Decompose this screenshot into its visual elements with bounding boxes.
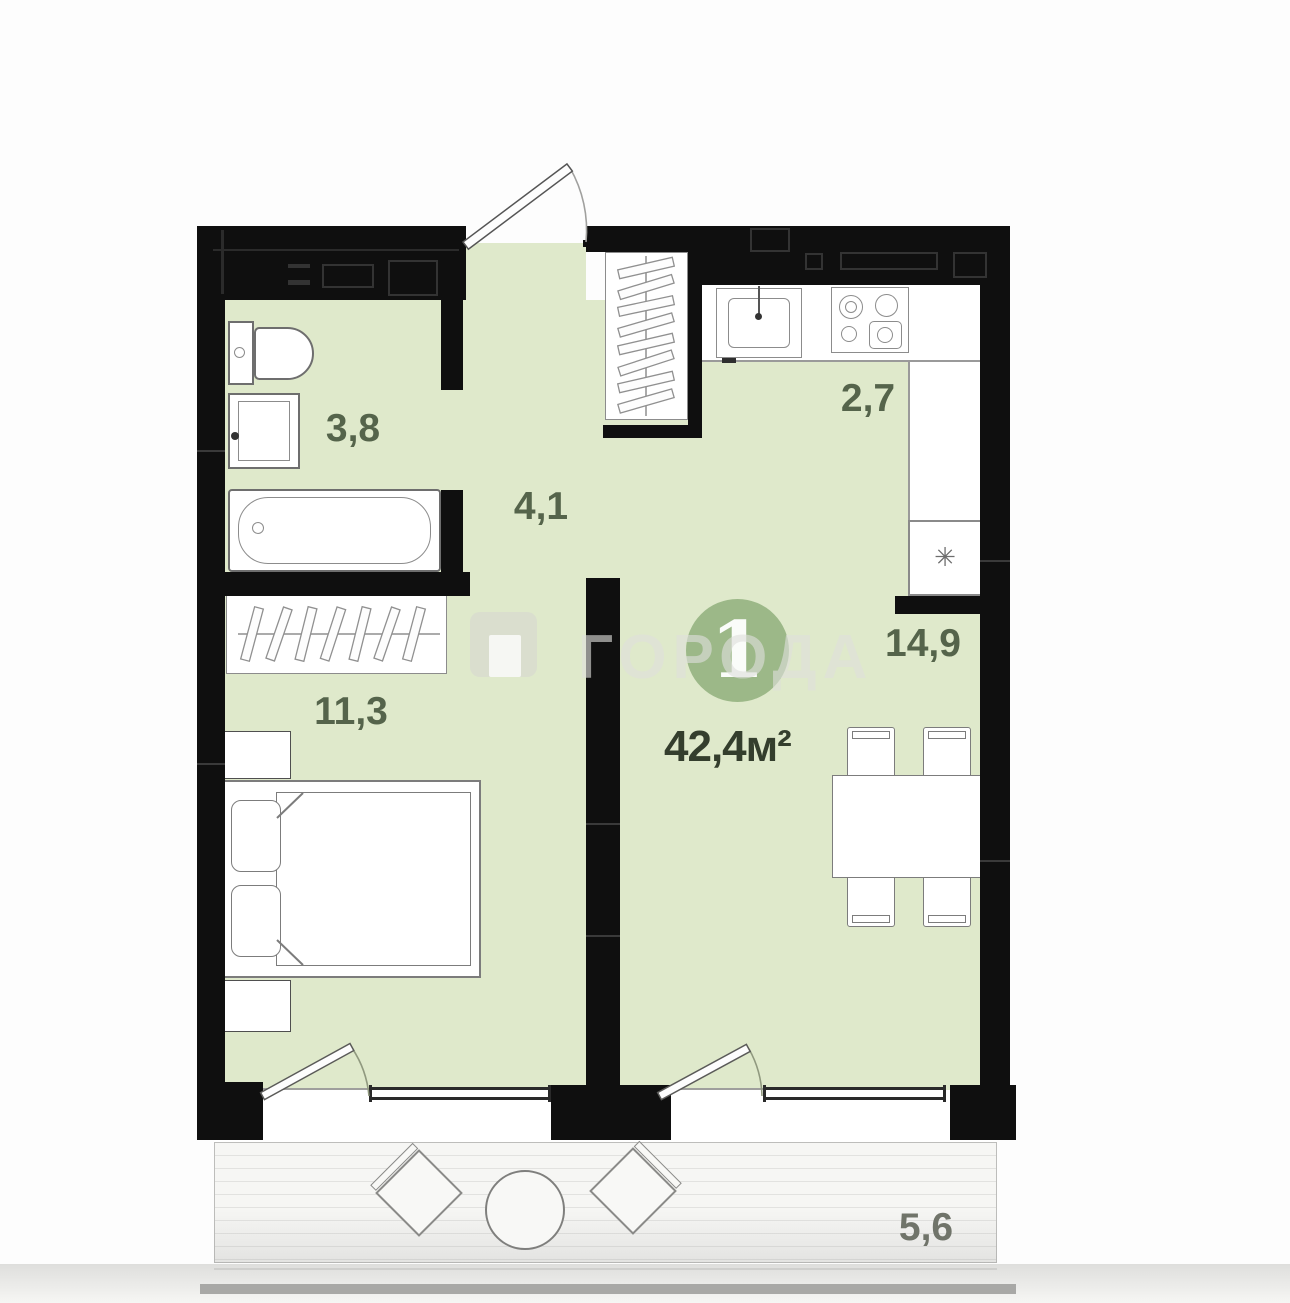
bathroom-sink-basin — [238, 401, 290, 461]
fridge: ✳ — [908, 520, 982, 596]
chair-backrest — [928, 731, 966, 739]
window-end-tick — [763, 1085, 766, 1102]
wall-joint-tick — [586, 935, 620, 937]
bathtub-drain — [252, 522, 264, 534]
sink-faucet-dot — [231, 432, 239, 440]
balcony-deck-edge-line — [214, 1268, 997, 1270]
window-end-tick — [548, 1085, 551, 1102]
wall-joint-tick — [586, 823, 620, 825]
chair-backrest — [928, 915, 966, 923]
entrance-door-swing — [463, 164, 587, 249]
stove-burner-4 — [877, 327, 893, 343]
nightstand-top — [224, 731, 291, 779]
bedroom-wardrobe — [226, 595, 447, 674]
wall-joint-tick — [980, 560, 1010, 562]
total-area-label: 42,4м² — [664, 722, 791, 772]
vent-outline — [388, 260, 438, 296]
kitchen-faucet — [758, 286, 760, 316]
balcony-shadow-bar — [200, 1284, 1016, 1294]
stove-burner-2 — [875, 294, 898, 317]
balcony-round-table — [485, 1170, 565, 1250]
pier-bottom-left — [197, 1082, 263, 1140]
wall-wardrobe-right — [688, 252, 702, 438]
wall-top-middle — [586, 226, 702, 252]
apartment-number-badge: 1 — [686, 599, 789, 702]
wall-joint-tick — [197, 450, 225, 452]
window-end-tick — [943, 1085, 946, 1102]
balcony-door-threshold-bedroom — [263, 1088, 369, 1090]
vent-outline — [953, 252, 987, 278]
toilet-flush-button — [234, 347, 245, 358]
wall-fridge-stub — [895, 596, 982, 614]
wall-bathroom-bottom — [197, 572, 470, 596]
pier-bottom-center — [551, 1085, 671, 1140]
vent-outline — [213, 249, 459, 251]
nightstand-bottom — [224, 980, 291, 1032]
chair-backrest — [852, 915, 890, 923]
cabinet-handle — [722, 358, 736, 363]
vent-outline — [288, 264, 310, 268]
wall-right — [980, 226, 1010, 1086]
bedroom-window — [369, 1087, 551, 1100]
bed-pillow-top — [231, 800, 281, 872]
floor-plan: ✳ 1 42,4м² 3,8 4,1 2,7 14,9 11,3 5,6 — [0, 0, 1290, 1303]
floor-entry-strip — [466, 243, 586, 303]
balcony-door-threshold-living — [660, 1088, 763, 1090]
wall-joint-tick — [980, 860, 1010, 862]
wall-joint-tick — [197, 763, 225, 765]
vent-outline — [322, 264, 374, 288]
wall-bathroom-right-upper — [441, 300, 463, 390]
balcony-area-label: 5,6 — [876, 1206, 976, 1250]
bathroom-area-label: 3,8 — [303, 407, 403, 451]
bedroom-area-label: 11,3 — [301, 690, 401, 734]
wall-wardrobe-bottom — [603, 425, 702, 438]
living-room-area-label: 14,9 — [863, 622, 983, 666]
stove-burner-3 — [841, 326, 857, 342]
vent-outline — [805, 253, 823, 270]
vent-outline — [288, 280, 310, 285]
pier-bottom-right — [950, 1085, 1016, 1140]
chair-backrest — [852, 731, 890, 739]
wall-central — [586, 578, 620, 1085]
window-end-tick — [369, 1085, 372, 1102]
entrance-hinge-right — [583, 240, 590, 247]
bed-mattress — [276, 792, 471, 966]
hallway-wardrobe — [605, 252, 688, 420]
dining-table — [832, 775, 985, 878]
bathtub-inner — [238, 497, 431, 564]
entrance-hinge-left — [463, 240, 470, 247]
vent-outline — [221, 230, 224, 294]
vent-outline — [750, 228, 790, 252]
kitchen-faucet-dot — [755, 313, 762, 320]
wall-left — [197, 226, 225, 1084]
hallway-area-label: 4,1 — [491, 485, 591, 529]
kitchen-area-label: 2,7 — [818, 377, 918, 421]
wall-bathroom-right-lower — [441, 490, 463, 574]
vent-outline — [840, 252, 938, 270]
living-room-window — [763, 1087, 946, 1100]
bed-pillow-bottom — [231, 885, 281, 957]
toilet-bowl — [254, 327, 314, 380]
snowflake-icon: ✳ — [910, 522, 980, 594]
stove-burner-large-inner — [845, 301, 857, 313]
apartment-number: 1 — [710, 605, 764, 696]
